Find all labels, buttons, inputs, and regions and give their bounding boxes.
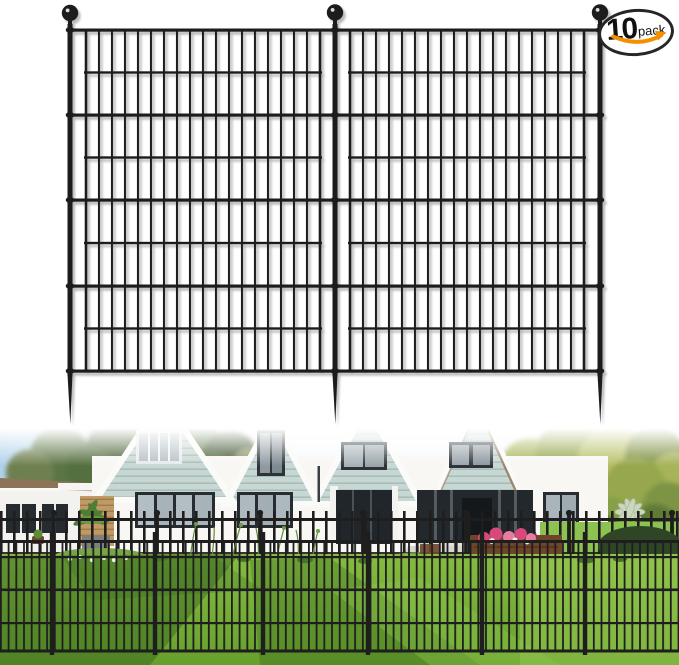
product-image: 10 pack [0,0,679,665]
installed-product-fence [0,532,679,655]
downspout [318,466,321,502]
installation-photo [0,428,679,665]
fence-post-middle [327,4,343,424]
fence-illustration [0,0,679,426]
fence-post-right [592,4,608,424]
smile-arrow-icon [610,30,669,50]
fence-post-left [62,5,78,424]
photo-top-fade [0,428,679,466]
fence-drawing [62,4,608,424]
